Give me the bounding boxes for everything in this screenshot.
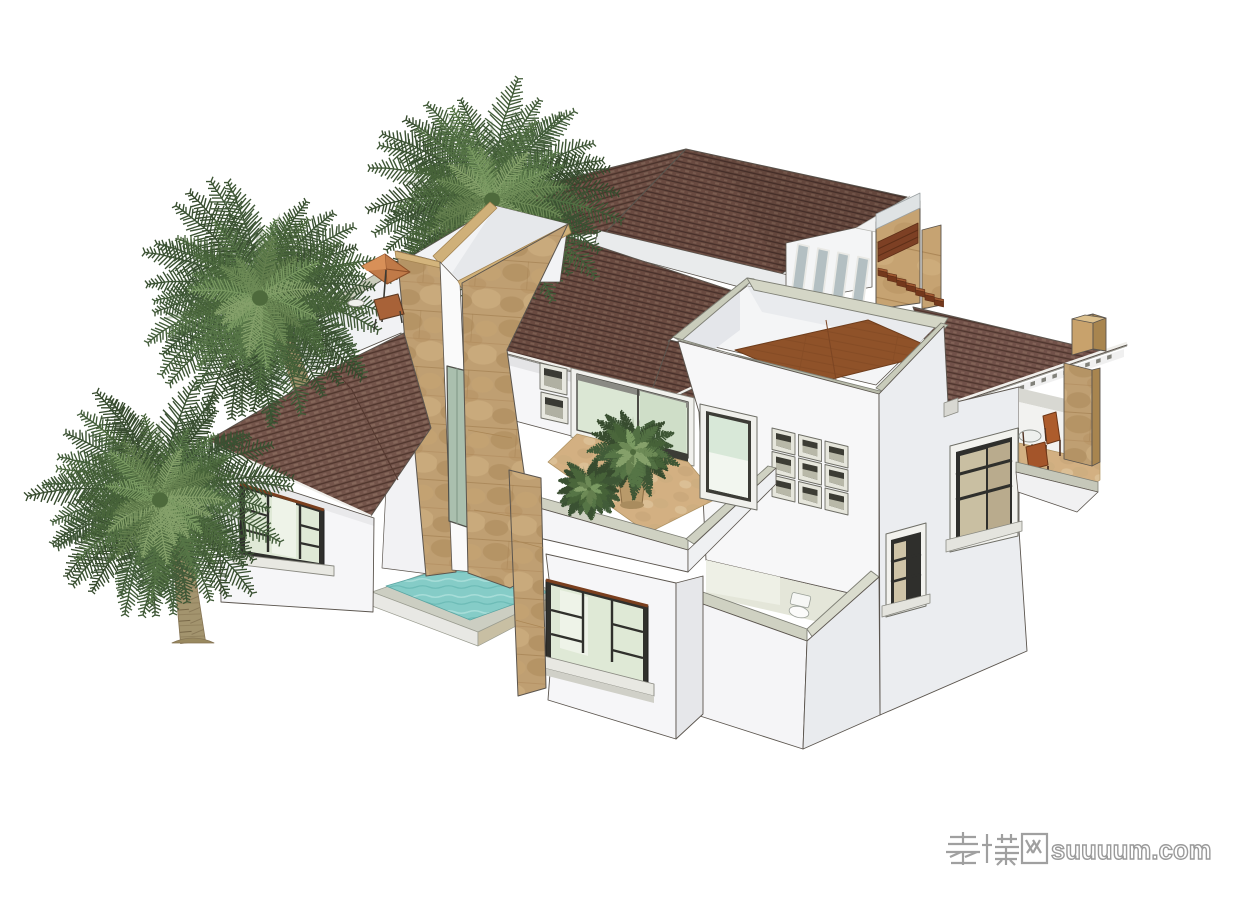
svg-text:suuuum.com: suuuum.com	[1051, 837, 1212, 865]
